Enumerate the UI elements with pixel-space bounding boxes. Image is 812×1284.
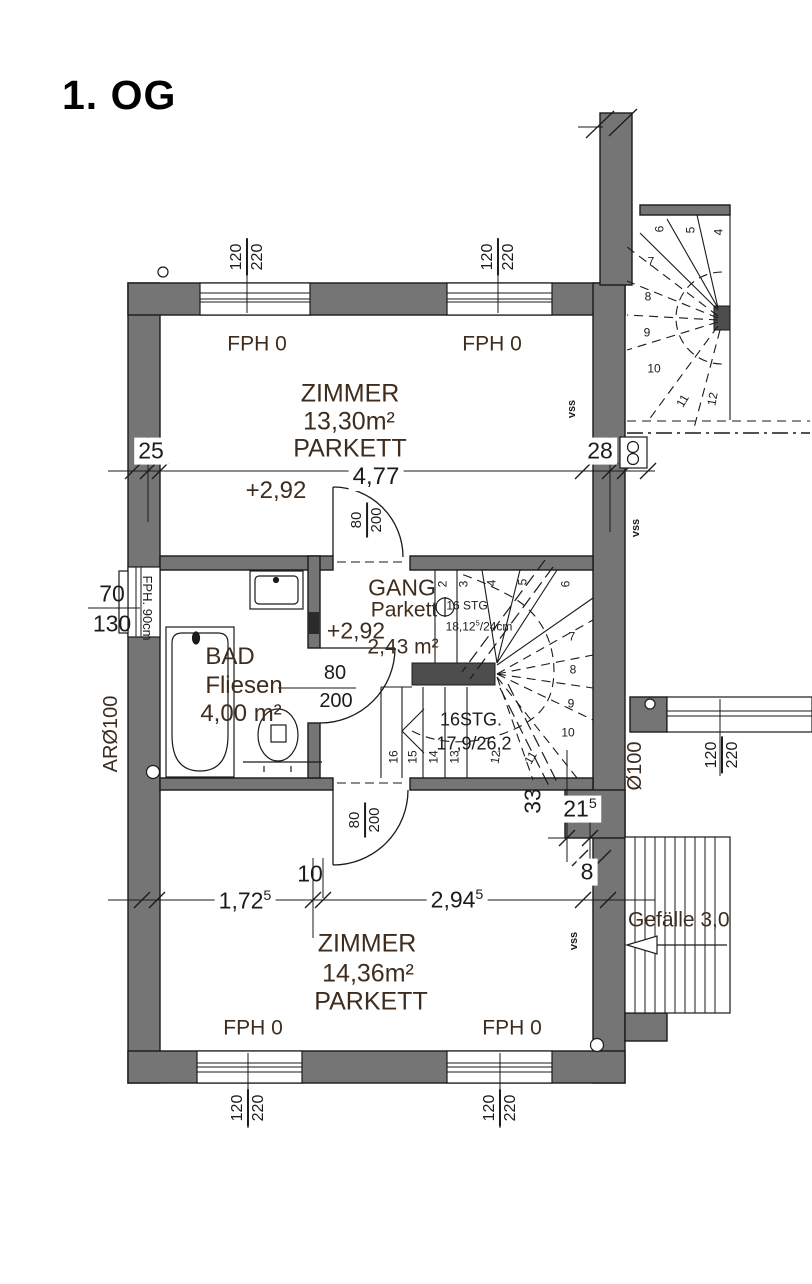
dim-nib: 10 [297, 862, 323, 887]
step-number: 14 [428, 750, 441, 763]
step-number: 5 [685, 227, 698, 234]
window-dim-left-h: 130 [93, 612, 131, 637]
dim-end: 8 [577, 859, 598, 886]
dim-niche-h: 33 [521, 788, 546, 814]
step-number: 10 [647, 363, 660, 376]
room1-fph-left: FPH 0 [227, 334, 287, 357]
page-title: 1. OG [62, 72, 176, 119]
stair-riser-label: 18,125/24cm [446, 621, 513, 634]
window-dim-bottom-left: 120220 [229, 1095, 267, 1122]
stair-count-label: 16 STG [446, 600, 487, 613]
step-number: 4 [713, 229, 726, 236]
slope-label: Gefälle 3,0 [628, 910, 730, 933]
gang-name: GANG [368, 576, 436, 601]
room2-fph-right: FPH 0 [482, 1018, 542, 1041]
dim-wall-right: 28 [583, 438, 617, 465]
door-stop [308, 612, 319, 634]
ar-pipe-label: ARØ100 [101, 696, 123, 773]
window-dim-bottom-right: 120220 [481, 1095, 519, 1122]
door-dim-room2: 80200 [347, 807, 383, 832]
step-number: 13 [449, 750, 462, 763]
dim-seg2: 2,945 [427, 887, 488, 914]
dim-niche-w: 215 [559, 796, 601, 823]
door-dim-bad-h: 200 [319, 691, 352, 713]
gang-area: 2,43 m² [367, 637, 438, 660]
floor-plan-page: 1. OG FPH 0 FPH 0 ZIMMER 13,30m² PARKETT… [0, 0, 812, 1284]
step-number: 8 [570, 664, 577, 677]
step-number: 15 [407, 750, 420, 763]
door-dim-bad-w: 80 [324, 663, 346, 685]
dim-wall-left: 25 [134, 438, 168, 465]
step-number: 12 [705, 391, 720, 406]
vss-label: vss [567, 400, 579, 418]
vss-label: vss [631, 519, 643, 537]
bad-area: 4,00 m² [200, 701, 281, 727]
step-number: 6 [654, 226, 667, 233]
vss-label: vss [569, 932, 581, 950]
step-number: 16 [388, 750, 401, 763]
step-number: 2 [437, 581, 450, 588]
room2-floor: PARKETT [314, 989, 427, 1016]
room1-fph-right: FPH 0 [462, 334, 522, 357]
window-left-note: FPH. 90cm [140, 575, 154, 640]
pipe-label: Ø100 [625, 742, 647, 791]
room2-area: 14,36m² [322, 961, 414, 988]
step-number: 9 [568, 698, 575, 711]
step-number: 12 [489, 749, 504, 764]
step-number: 9 [644, 327, 651, 340]
room1-area: 13,30m² [303, 409, 395, 436]
room2-fph-left: FPH 0 [223, 1018, 283, 1041]
step-number: 8 [645, 291, 652, 304]
dim-seg1: 1,725 [215, 888, 276, 915]
step-number: 3 [458, 581, 471, 588]
room2-name: ZIMMER [318, 931, 417, 958]
window-dim-top-right: 120220 [479, 244, 517, 271]
step-number: 4 [486, 580, 499, 587]
window-dim-neighbor: 120220 [703, 742, 741, 769]
step-number: 6 [560, 581, 573, 588]
bad-floor: Fliesen [205, 673, 282, 699]
room1-name: ZIMMER [301, 381, 400, 408]
window-dim-top-left: 120220 [228, 244, 266, 271]
stair-count-label2: 16STG. [440, 710, 502, 729]
door-dim-room1: 80200 [349, 507, 385, 532]
room1-level: +2,92 [246, 478, 307, 504]
step-number: 10 [561, 727, 574, 740]
step-number: 7 [648, 256, 655, 269]
dim-room-width: 4,77 [349, 463, 404, 491]
window-dim-left-w: 70 [99, 582, 125, 607]
washbasin [250, 571, 303, 609]
step-number: 5 [517, 579, 530, 586]
room1-floor: PARKETT [293, 436, 406, 463]
step-number: 7 [569, 631, 576, 644]
bad-name: BAD [205, 644, 254, 670]
